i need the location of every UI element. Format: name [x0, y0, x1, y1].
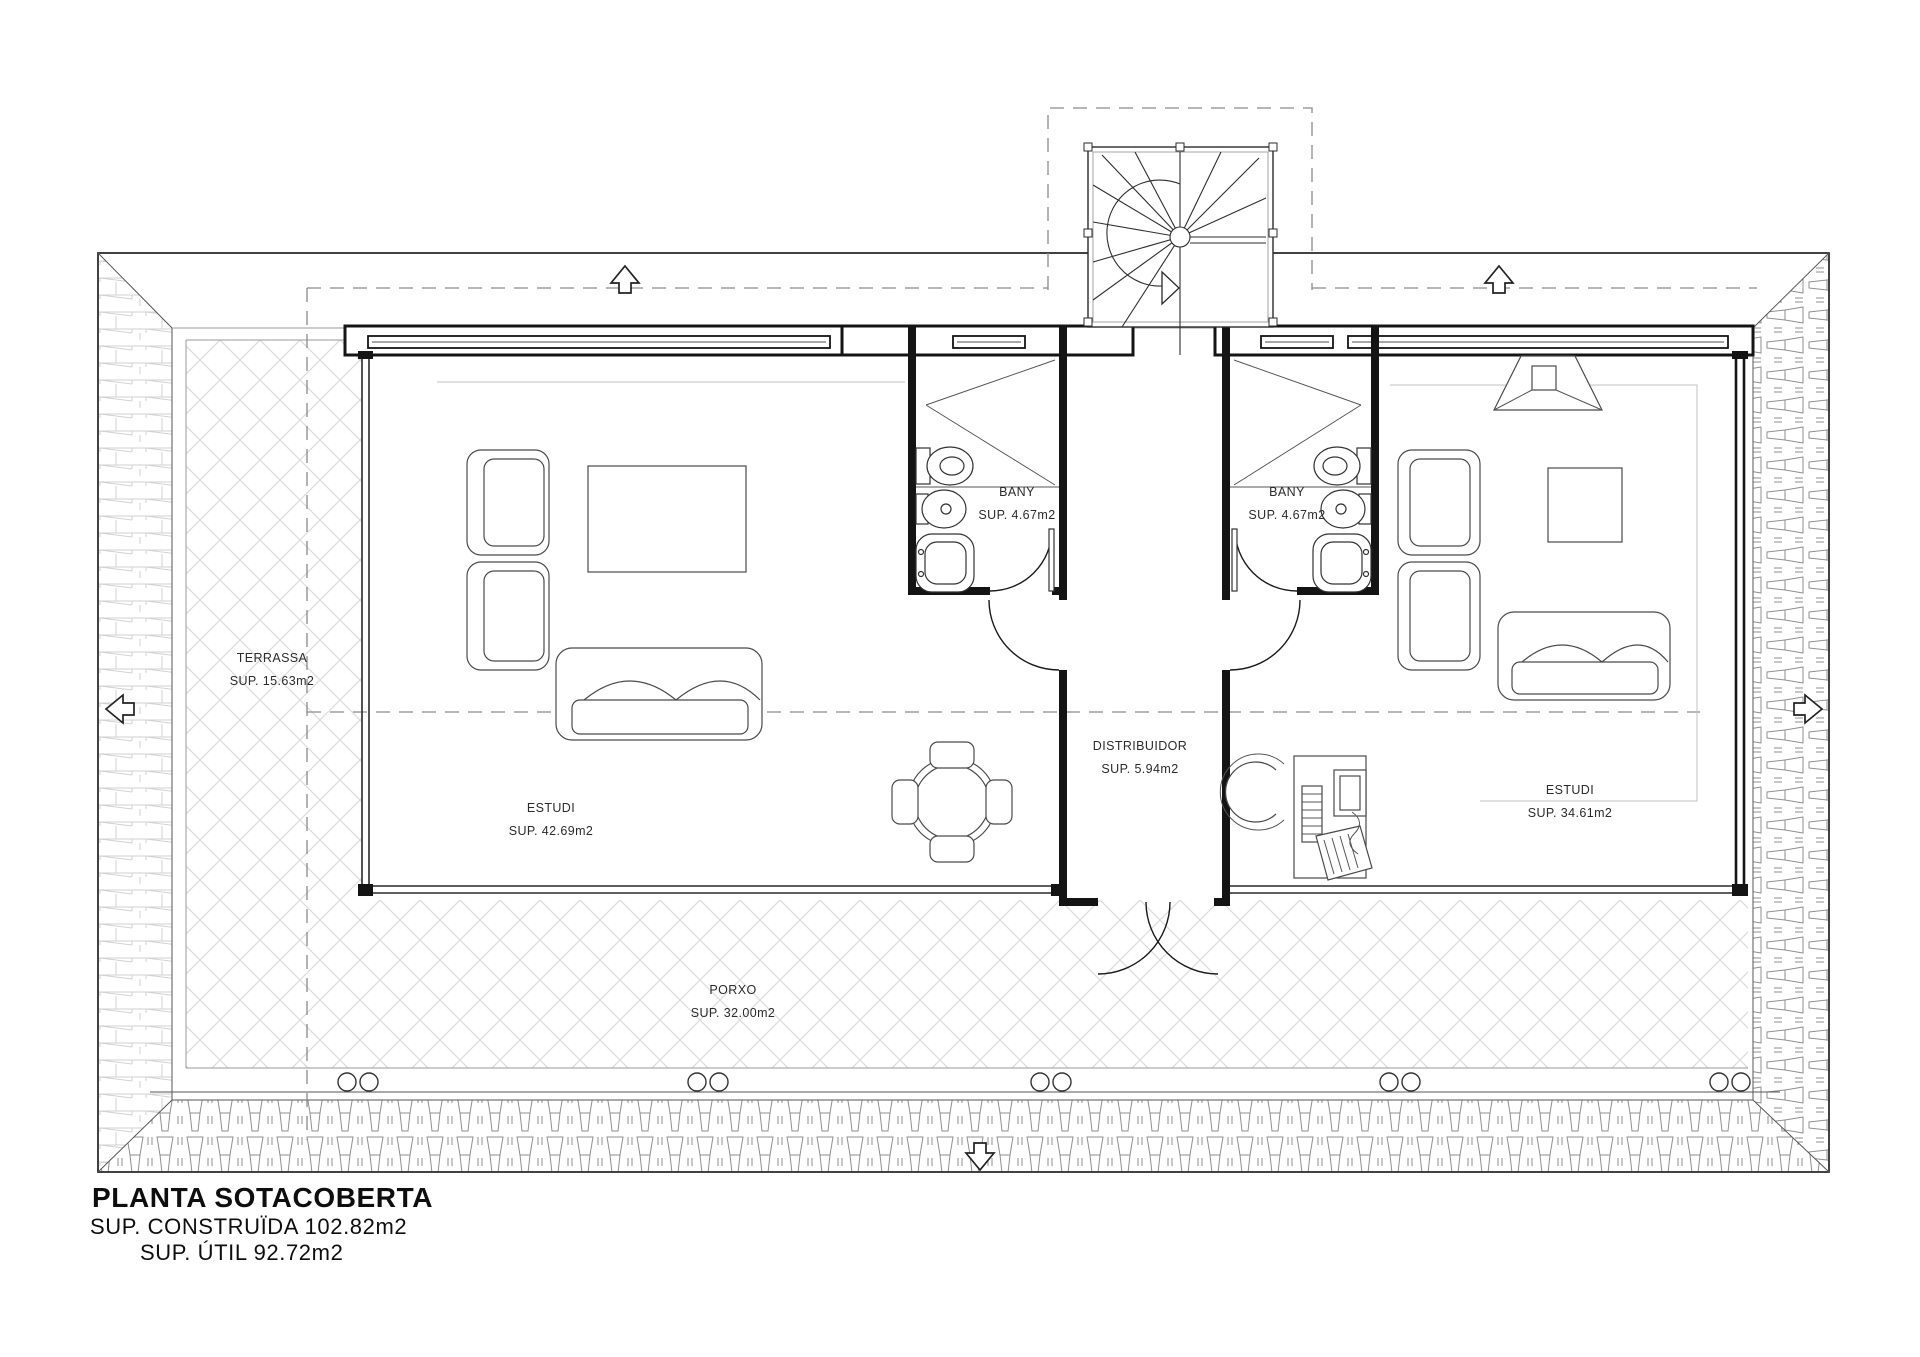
terrassa-label: TERRASSA	[237, 651, 308, 665]
toilet-left	[916, 447, 973, 485]
washbasin-left	[916, 534, 974, 592]
terrassa-area: SUP. 15.63m2	[230, 674, 314, 688]
bany-left-label: BANY	[999, 485, 1035, 499]
toilet-right	[1314, 447, 1371, 485]
bany-right-area: SUP. 4.67m2	[1248, 508, 1325, 522]
plan-title: PLANTA SOTACOBERTA	[92, 1182, 433, 1213]
distribuidor-west-wall-lower	[1059, 670, 1067, 906]
distribuidor-label: DISTRIBUIDOR	[1093, 739, 1187, 753]
sofa	[556, 648, 762, 740]
porxo-label: PORXO	[709, 983, 756, 997]
dining-table	[892, 742, 1012, 862]
bidet-left	[916, 490, 966, 528]
diamond-paving	[186, 340, 1748, 1068]
window-wall-east	[1736, 355, 1744, 886]
chair	[930, 836, 974, 862]
estudi-right-label: ESTUDI	[1546, 783, 1594, 797]
stairwell	[1084, 143, 1277, 355]
window-wall-west	[362, 355, 369, 886]
porxo-area: SUP. 32.00m2	[691, 1006, 775, 1020]
arrow-up-icon	[611, 266, 639, 293]
washbasin-right	[1313, 534, 1371, 592]
bany-left-west-wall	[908, 327, 916, 595]
door-leaf-bany-left	[1049, 529, 1054, 591]
roof-tiles-bottom	[98, 1100, 1829, 1172]
distribuidor-east-wall-upper	[1222, 327, 1230, 600]
chair	[892, 780, 918, 824]
bany-right-east-wall	[1371, 327, 1379, 595]
porch-door-jamb-left	[1066, 898, 1098, 906]
coffee-table	[588, 466, 746, 572]
bany-left-area: SUP. 4.67m2	[978, 508, 1055, 522]
floor-plan-drawing: TERRASSA SUP. 15.63m2 ESTUDI SUP. 42.69m…	[0, 0, 1920, 1357]
porch-columns	[338, 1073, 1750, 1091]
built-area-text: SUP. CONSTRUÏDA 102.82m2	[90, 1214, 407, 1239]
window-wall-south-left	[362, 886, 1059, 893]
estudi-left-area: SUP. 42.69m2	[509, 824, 593, 838]
north-wall	[345, 326, 1753, 355]
estudi-right-area: SUP. 34.61m2	[1528, 806, 1612, 820]
distribuidor-area: SUP. 5.94m2	[1101, 762, 1178, 776]
window-wall-south-right	[1230, 886, 1745, 893]
useful-area-text: SUP. ÚTIL 92.72m2	[140, 1240, 343, 1265]
bidet-right	[1321, 490, 1371, 528]
desk-workstation	[1220, 754, 1372, 880]
estudi-left-label: ESTUDI	[527, 801, 575, 815]
sofa	[1498, 612, 1670, 700]
bany-right-room	[1230, 360, 1371, 592]
title-block: PLANTA SOTACOBERTA SUP. CONSTRUÏDA 102.8…	[90, 1182, 433, 1265]
bany-left-room	[916, 360, 1059, 592]
door-arc-estudi-left	[989, 600, 1059, 670]
tv-set	[1494, 356, 1602, 410]
door-arc-bany-right	[1235, 529, 1297, 591]
chair	[930, 742, 974, 768]
floor-plan-page: TERRASSA SUP. 15.63m2 ESTUDI SUP. 42.69m…	[0, 0, 1920, 1357]
door-arc-bany-left	[990, 529, 1052, 591]
distribuidor-west-wall-upper	[1059, 327, 1067, 600]
door-leaf-bany-right	[1232, 529, 1237, 591]
chair	[986, 780, 1012, 824]
side-table	[1548, 468, 1622, 542]
arrow-up-icon	[1485, 266, 1513, 293]
door-arc-estudi-right	[1230, 600, 1300, 670]
porch-door-jamb-right	[1214, 898, 1230, 906]
bany-right-label: BANY	[1269, 485, 1305, 499]
office-chair	[1226, 762, 1276, 822]
